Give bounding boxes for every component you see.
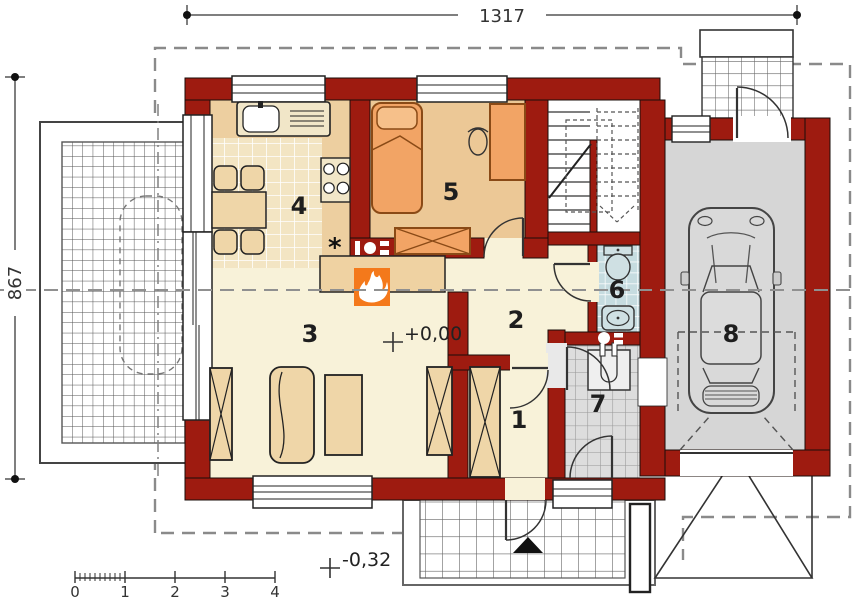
headlight-left	[698, 217, 712, 226]
room-number-3: 3	[302, 320, 319, 348]
svg-text:-0,32: -0,32	[342, 549, 391, 571]
window-terrace-kitchen	[183, 115, 212, 232]
floor-plan-canvas: *	[0, 0, 864, 600]
dimension-left: 867	[4, 73, 26, 483]
cooktop	[321, 158, 350, 202]
level-marker-entrance: -0,32	[320, 549, 391, 578]
dimension-width-label: 1317	[479, 6, 525, 27]
svg-text:+0,00: +0,00	[404, 323, 462, 345]
room-number-8: 8	[723, 320, 740, 348]
mirror-right	[773, 272, 781, 285]
room-number-6: 6	[609, 276, 626, 304]
porch-column	[630, 504, 650, 592]
coffee-table	[325, 375, 362, 455]
entrance-porch	[403, 500, 655, 592]
window-kitchen-top	[232, 76, 325, 102]
window-living-bottom	[253, 476, 372, 508]
bed-pillow	[377, 107, 417, 129]
door-opening-room7-garage	[638, 358, 667, 406]
room-number-5: 5	[443, 178, 460, 206]
rear-porch	[700, 30, 793, 118]
dimension-height-label: 867	[5, 266, 26, 300]
scale-label-0: 0	[70, 583, 80, 600]
window-hall-bottom	[553, 480, 612, 508]
car	[681, 208, 781, 413]
terrace	[40, 122, 190, 463]
scale-label-3: 3	[220, 583, 230, 600]
door-opening-room1	[510, 353, 548, 372]
sofa	[270, 367, 314, 463]
kitchen-sink-unit	[237, 101, 330, 136]
window-bedroom-top	[417, 76, 507, 102]
desk	[490, 104, 525, 180]
window-garage-top	[672, 116, 710, 142]
room-number-7: 7	[590, 390, 607, 418]
door-opening-hall-room7	[546, 343, 567, 388]
door-opening-bathroom	[586, 262, 599, 302]
scale-bar: 0 1 2 3 4	[70, 571, 280, 600]
scale-label-4: 4	[270, 583, 280, 600]
sliding-door-terrace	[183, 232, 212, 420]
dimension-top: 1317	[183, 3, 801, 27]
room-number-1: 1	[511, 406, 528, 434]
dining-table	[212, 192, 266, 228]
door-opening-garage-rear	[733, 116, 791, 142]
desk-chair	[469, 129, 487, 155]
door-opening-entrance	[505, 478, 545, 500]
mirror-left	[681, 272, 689, 285]
scale-label-1: 1	[120, 583, 130, 600]
floor-plan-svg: *	[0, 0, 864, 600]
room-number-2: 2	[508, 306, 525, 334]
garage-door-opening	[680, 450, 793, 476]
headlight-right	[750, 217, 764, 226]
scale-label-2: 2	[170, 583, 180, 600]
room-number-4: 4	[291, 192, 308, 220]
